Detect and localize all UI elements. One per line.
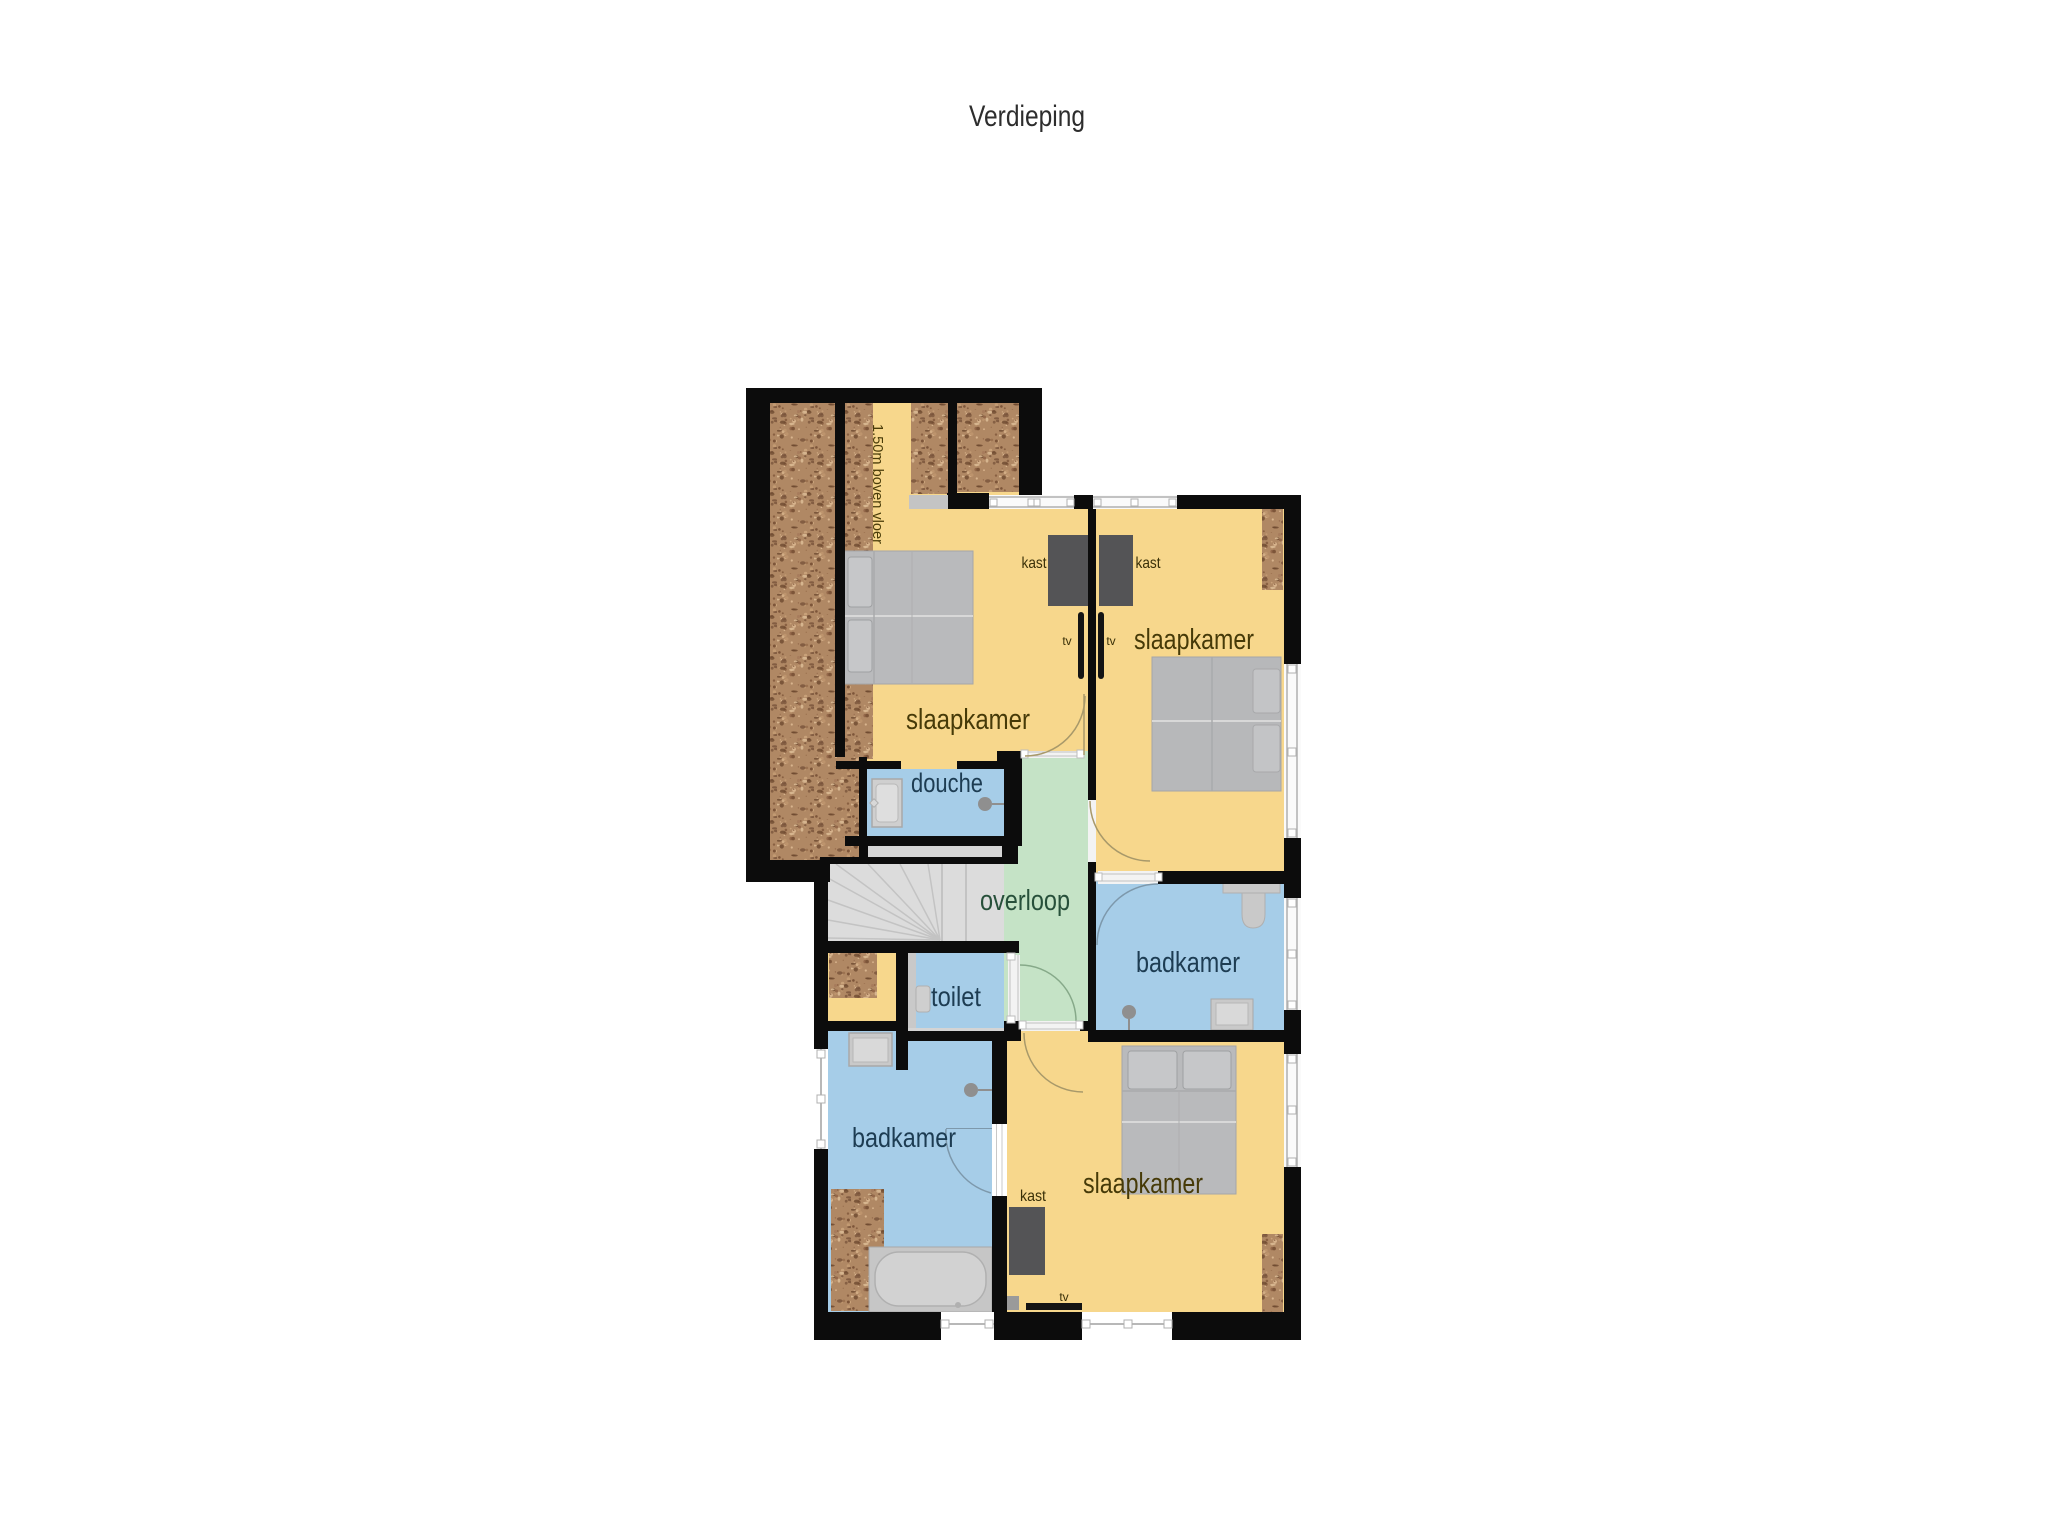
svg-text:douche: douche bbox=[911, 768, 983, 798]
svg-text:kast: kast bbox=[1136, 555, 1161, 572]
svg-text:Verdieping: Verdieping bbox=[969, 100, 1085, 133]
svg-text:tv: tv bbox=[1059, 1290, 1068, 1304]
svg-text:badkamer: badkamer bbox=[1136, 947, 1240, 979]
svg-text:1.50m boven vloer: 1.50m boven vloer bbox=[869, 424, 886, 544]
svg-text:slaapkamer: slaapkamer bbox=[1083, 1168, 1203, 1200]
svg-text:toilet: toilet bbox=[931, 981, 981, 1012]
svg-text:slaapkamer: slaapkamer bbox=[906, 704, 1030, 736]
svg-text:slaapkamer: slaapkamer bbox=[1134, 624, 1254, 656]
svg-text:badkamer: badkamer bbox=[852, 1122, 956, 1153]
svg-text:kast: kast bbox=[1022, 555, 1047, 572]
svg-text:kast: kast bbox=[1020, 1188, 1046, 1205]
svg-text:overloop: overloop bbox=[980, 885, 1070, 917]
svg-text:tv: tv bbox=[1106, 634, 1115, 648]
svg-text:tv: tv bbox=[1062, 634, 1071, 648]
